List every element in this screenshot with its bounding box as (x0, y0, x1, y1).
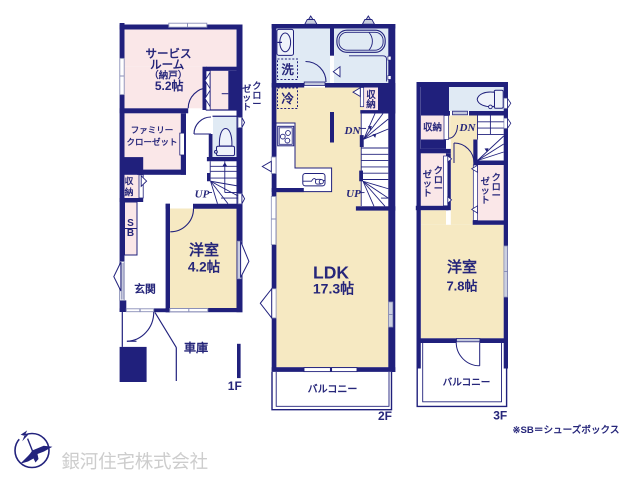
svg-text:収納: 収納 (423, 122, 442, 134)
svg-text:ファミリー: ファミリー (131, 125, 174, 135)
svg-text:クローゼット: クローゼット (126, 137, 177, 147)
svg-text:冷: 冷 (281, 91, 294, 106)
svg-text:銀河住宅株式会社: 銀河住宅株式会社 (62, 451, 208, 472)
svg-text:7.8帖: 7.8帖 (446, 279, 477, 294)
svg-text:ト: ト (481, 195, 490, 205)
svg-text:4.2帖: 4.2帖 (188, 259, 221, 275)
svg-text:バルコニー: バルコニー (308, 384, 358, 396)
svg-text:3F: 3F (493, 409, 507, 423)
svg-text:2F: 2F (378, 409, 392, 423)
svg-text:5.2帖: 5.2帖 (155, 78, 184, 93)
svg-text:ー: ー (492, 191, 501, 201)
svg-text:収: 収 (125, 175, 134, 186)
svg-text:LDK: LDK (313, 263, 349, 283)
svg-text:バルコニー: バルコニー (443, 377, 491, 389)
svg-text:ト: ト (242, 102, 251, 112)
svg-text:玄関: 玄関 (134, 281, 156, 295)
svg-text:納: 納 (366, 99, 376, 111)
svg-text:車庫: 車庫 (184, 340, 208, 355)
svg-text:UP: UP (346, 188, 361, 200)
svg-text:ー: ー (434, 184, 443, 194)
svg-text:洋室: 洋室 (447, 258, 477, 276)
svg-text:納: 納 (125, 186, 134, 197)
svg-text:サービス: サービス (146, 47, 192, 61)
svg-text:1F: 1F (228, 379, 242, 393)
svg-text:DN: DN (459, 122, 477, 134)
svg-text:ト: ト (423, 188, 432, 198)
svg-text:17.3帖: 17.3帖 (313, 281, 354, 297)
svg-text:※SB＝シューズボックス: ※SB＝シューズボックス (513, 424, 620, 436)
svg-text:UP: UP (195, 189, 210, 201)
svg-text:ー: ー (252, 99, 261, 109)
svg-text:B: B (127, 228, 134, 239)
svg-text:DN: DN (344, 125, 362, 137)
svg-text:洗: 洗 (281, 62, 294, 77)
svg-text:洋室: 洋室 (189, 241, 219, 259)
